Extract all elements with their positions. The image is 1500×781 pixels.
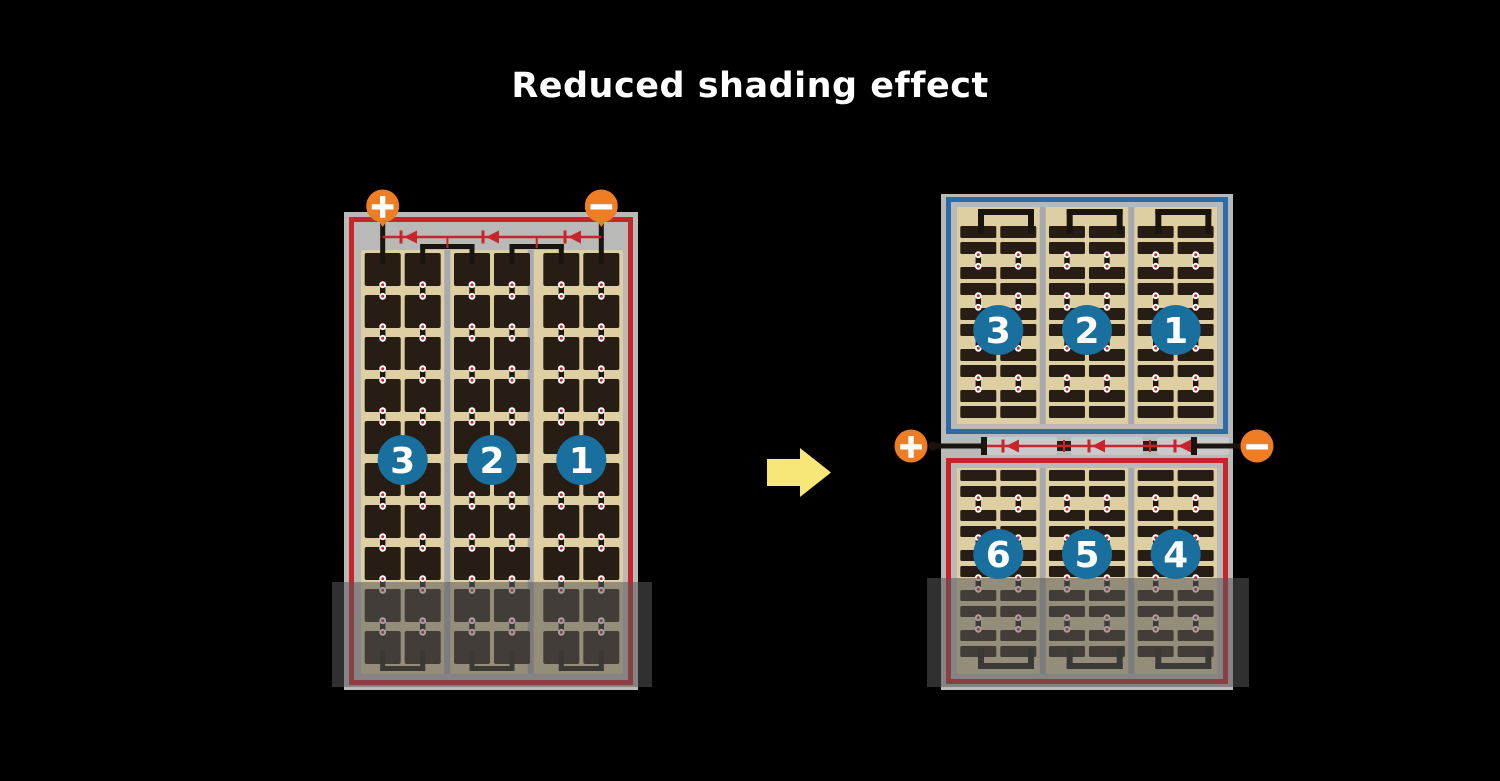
solder-joint (1152, 374, 1159, 392)
right-string-circle-5: 5 (1062, 529, 1112, 579)
half-cell (1089, 406, 1125, 418)
string-number: 2 (1074, 311, 1099, 352)
solder-joint (1064, 251, 1071, 269)
solder-joint (379, 281, 386, 299)
solder-joint (1152, 494, 1159, 512)
solder-joint (598, 365, 605, 383)
solder-joint (1104, 251, 1111, 269)
solder-joint (975, 374, 982, 392)
solar-cell (405, 547, 441, 580)
half-cell (1049, 406, 1085, 418)
solder-joint (1064, 494, 1071, 512)
solder-joint (558, 491, 565, 509)
right-string-circle-4: 4 (1151, 529, 1201, 579)
left-string-circle-2: 2 (467, 435, 517, 485)
solder-joint (1152, 251, 1159, 269)
string-jumper (978, 209, 1034, 215)
solder-joint (419, 491, 426, 509)
solder-joint (419, 323, 426, 341)
solar-cell (543, 505, 579, 538)
solder-joint (469, 491, 476, 509)
solder-joint (598, 407, 605, 425)
transform-arrow (767, 448, 831, 497)
solder-joint (1192, 251, 1199, 269)
solar-cell (365, 547, 401, 580)
solar-cell (405, 337, 441, 370)
terminal-sign: + (369, 187, 396, 225)
solar-cell (405, 295, 441, 328)
solder-joint (469, 407, 476, 425)
solder-joint (598, 491, 605, 509)
string-number: 5 (1074, 535, 1099, 576)
solar-cell (405, 379, 441, 412)
string-jumper (1155, 209, 1211, 215)
solar-cell (454, 505, 490, 538)
half-cell (1138, 470, 1174, 481)
solar-cell (583, 505, 619, 538)
solder-joint (1015, 292, 1022, 310)
solar-cell (543, 337, 579, 370)
string-number: 1 (569, 441, 594, 482)
solder-joint (975, 292, 982, 310)
solder-joint (1104, 494, 1111, 512)
half-cell (1000, 470, 1036, 481)
solder-joint (1015, 494, 1022, 512)
right-string-circle-2: 2 (1062, 305, 1112, 355)
half-cell (1089, 470, 1125, 481)
terminal-sign: − (588, 187, 615, 225)
solder-joint (558, 365, 565, 383)
solder-joint (558, 407, 565, 425)
solar-cell (365, 379, 401, 412)
solar-cell (583, 337, 619, 370)
solar-cell (543, 295, 579, 328)
solder-joint (419, 281, 426, 299)
solder-joint (598, 323, 605, 341)
solar-cell (494, 337, 530, 370)
solder-joint (1015, 374, 1022, 392)
solder-joint (598, 281, 605, 299)
solder-joint (419, 533, 426, 551)
solar-cell (365, 505, 401, 538)
shading-diagram: 321+−321654+− (0, 0, 1500, 781)
half-cell (1000, 406, 1036, 418)
half-cell (1138, 406, 1174, 418)
half-cell (960, 406, 996, 418)
string-number: 2 (479, 441, 504, 482)
solar-cell (454, 337, 490, 370)
solder-joint (509, 365, 516, 383)
solder-joint (1192, 374, 1199, 392)
right-section-divider (1040, 207, 1046, 424)
right-panel: 321654+− (895, 194, 1274, 690)
solar-cell (454, 295, 490, 328)
solder-joint (598, 533, 605, 551)
solder-joint (1104, 292, 1111, 310)
solder-joint (1104, 374, 1111, 392)
solder-joint (1064, 374, 1071, 392)
page-title: Reduced shading effect (0, 66, 1500, 106)
right-shade-band (927, 578, 1249, 687)
solder-joint (419, 407, 426, 425)
solar-cell (583, 379, 619, 412)
solder-joint (379, 365, 386, 383)
solar-cell (543, 379, 579, 412)
solder-joint (1015, 251, 1022, 269)
solder-joint (379, 491, 386, 509)
solar-cell (494, 547, 530, 580)
left-string-circle-3: 3 (378, 435, 428, 485)
terminal-sign: − (1244, 427, 1271, 465)
solder-joint (509, 491, 516, 509)
solder-joint (469, 533, 476, 551)
solder-joint (469, 323, 476, 341)
right-negative-terminal: − (1241, 427, 1274, 465)
right-string-circle-6: 6 (973, 529, 1023, 579)
left-shade-band (332, 582, 652, 687)
solar-cell (494, 379, 530, 412)
solar-cell (365, 337, 401, 370)
string-number: 1 (1163, 311, 1188, 352)
string-jumper (1067, 209, 1123, 215)
solar-cell (494, 505, 530, 538)
solder-joint (509, 407, 516, 425)
right-section-divider (1128, 207, 1134, 424)
solder-joint (558, 281, 565, 299)
solder-joint (1192, 494, 1199, 512)
junction-end-bar (981, 437, 987, 455)
wire-nub (929, 442, 938, 451)
solder-joint (1064, 292, 1071, 310)
string-number: 3 (986, 311, 1011, 352)
solder-joint (419, 365, 426, 383)
solder-joint (975, 494, 982, 512)
string-number: 3 (390, 441, 415, 482)
left-string-circle-1: 1 (556, 435, 606, 485)
terminal-sign: + (898, 427, 925, 465)
string-number: 4 (1163, 535, 1188, 576)
solar-cell (494, 295, 530, 328)
solar-cell (583, 547, 619, 580)
solder-joint (509, 323, 516, 341)
solar-cell (454, 379, 490, 412)
solder-joint (1192, 292, 1199, 310)
solder-joint (558, 323, 565, 341)
solar-cell (543, 547, 579, 580)
solder-joint (379, 323, 386, 341)
right-positive-terminal: + (895, 427, 928, 465)
solder-joint (1152, 292, 1159, 310)
solder-joint (379, 533, 386, 551)
right-string-circle-3: 3 (973, 305, 1023, 355)
junction-end-bar (1191, 437, 1197, 455)
string-number: 6 (986, 535, 1011, 576)
solar-cell (454, 547, 490, 580)
half-cell (960, 470, 996, 481)
solder-joint (379, 407, 386, 425)
solder-joint (469, 365, 476, 383)
solder-joint (975, 251, 982, 269)
left-panel: 321+− (332, 187, 652, 690)
half-cell (1049, 470, 1085, 481)
left-negative-terminal: − (585, 187, 618, 227)
solar-cell (405, 505, 441, 538)
half-cell (1178, 406, 1214, 418)
solar-cell (583, 295, 619, 328)
solder-joint (509, 281, 516, 299)
solar-cell (365, 295, 401, 328)
solder-joint (509, 533, 516, 551)
solder-joint (469, 281, 476, 299)
half-cell (1178, 470, 1214, 481)
right-string-circle-1: 1 (1151, 305, 1201, 355)
solder-joint (558, 533, 565, 551)
left-positive-terminal: + (366, 187, 399, 227)
